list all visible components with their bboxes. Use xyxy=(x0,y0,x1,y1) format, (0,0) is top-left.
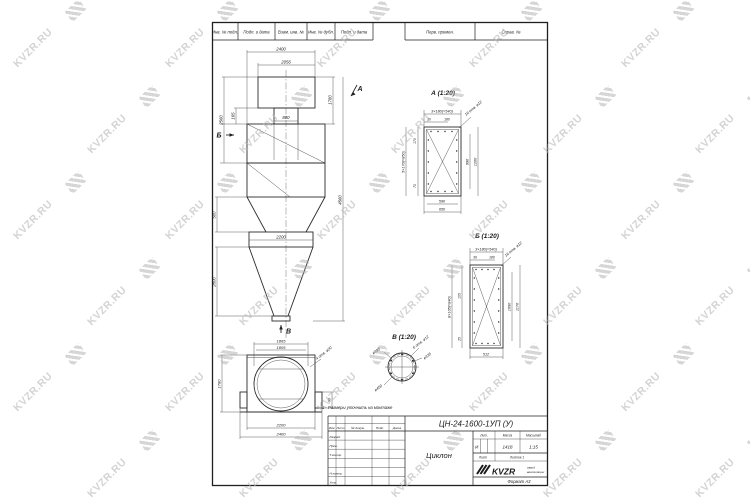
logo-subtext-1: завод xyxy=(526,466,535,470)
dim-label: 180 xyxy=(489,256,495,260)
row-label: Т.контр. xyxy=(330,453,343,457)
dim-label: 2200 xyxy=(276,423,287,428)
section-arrow-label-a: А xyxy=(356,86,362,93)
sheet-label: Лист xyxy=(478,456,488,460)
main-view-labels: 2400 2056 165 1780 800 2560 500 2800 220… xyxy=(212,47,363,336)
row-label: Разраб. xyxy=(330,435,341,439)
holes-note: 16 отв. ø12 xyxy=(504,241,523,258)
row-label: Н.контр. xyxy=(330,472,343,476)
dim-label: 180 xyxy=(444,118,450,122)
main-view-geometry xyxy=(247,70,325,338)
kvzr-logo-icon xyxy=(477,465,490,474)
holes-note: 4 отв. ø20 xyxy=(315,345,333,360)
sheets-label: Листов 1 xyxy=(509,456,524,460)
lit-label: Лит. xyxy=(479,434,488,438)
view-b-title: Б (1:20) xyxy=(475,233,499,240)
dim-label: ø450 xyxy=(374,383,384,392)
mass-value: 1418 xyxy=(502,445,513,450)
dim-label: 1200 xyxy=(474,157,478,166)
strip-cell-label: Инв. № подл. xyxy=(212,30,238,35)
dim-label: 1805 xyxy=(277,345,287,350)
col-label: Лист xyxy=(336,426,345,430)
lit-value: И xyxy=(475,445,479,450)
dim-label: 2200 xyxy=(275,235,286,240)
strip-cell-label: Инв. № дубл. xyxy=(308,30,334,35)
view-v-geometry xyxy=(384,348,422,385)
dim-label: 3×180(=540) xyxy=(431,110,453,114)
view-a-title: А (1:20) xyxy=(430,90,455,97)
dim-label: 25 xyxy=(458,337,462,342)
dim-label: 2400 xyxy=(275,47,286,52)
kvzr-logo: KVZR завод вентиляции xyxy=(477,465,545,477)
strip-cell-label: Подп. и дата xyxy=(341,30,368,35)
col-label: Подп. xyxy=(376,426,384,430)
dim-label: 512 xyxy=(483,353,490,357)
view-v-labels: В (1:20) 6 отв. ø12 ø395 ø335 ø450 xyxy=(372,334,433,392)
col-label: Изм. xyxy=(329,426,336,430)
dim-label: 500 xyxy=(212,211,217,219)
dim-label: 1170 xyxy=(516,302,520,311)
section-arrow-label-v: В xyxy=(286,329,291,336)
dim-label: 590 xyxy=(439,200,446,204)
drawing-sheet-svg: Инв. № подл. Подп. и дата Взам. инв. № И… xyxy=(0,0,750,500)
dim-label: 165 xyxy=(231,112,236,120)
scale-value: 1:15 xyxy=(529,445,538,450)
top-strip-labels: Инв. № подл. Подп. и дата Взам. инв. № И… xyxy=(212,30,521,35)
part-name: Циклон xyxy=(426,451,452,460)
drawing-designation: ЦН-24-1600-1УП (У) xyxy=(439,420,514,429)
dim-label: 170 xyxy=(413,138,417,144)
dim-label: 1780 xyxy=(328,95,333,105)
row-label: Утв. xyxy=(330,481,337,485)
dim-label: 2056 xyxy=(280,60,291,65)
format-label: Формат А3 xyxy=(508,479,532,484)
dim-label: 8×105(=840) xyxy=(448,295,452,317)
dim-label: 4560 xyxy=(338,195,343,205)
dim-label: 2560 xyxy=(219,115,224,126)
dim-label: 30 xyxy=(427,118,431,122)
dim-label: 105 xyxy=(458,293,462,299)
dim-label: 650 xyxy=(439,208,446,212)
dim-label: 2800 xyxy=(212,277,217,288)
dim-label: 3×180(=540) xyxy=(475,248,497,252)
dim-label: ø395 xyxy=(372,346,382,355)
sprav-label: Справ. № xyxy=(501,30,520,35)
holes-note: 16 отв. ø12 xyxy=(464,100,483,117)
screenshot-stage: Инв. № подл. Подп. и дата Взам. инв. № И… xyxy=(0,0,750,500)
col-label: № докум. xyxy=(351,426,365,430)
section-arrow-label-b: Б xyxy=(217,133,222,140)
dim-label: 1090 xyxy=(508,302,512,311)
dim-label: 5×170(=850) xyxy=(402,150,406,172)
dim-label: 1865 xyxy=(277,339,287,344)
dim-label: 70 xyxy=(413,184,417,188)
dim-label: 36 xyxy=(473,256,477,260)
drawing-note: 1 - Размеры уточнить на монтаже xyxy=(322,405,393,410)
col-label: Дата xyxy=(392,426,401,430)
scale-label: Масштаб xyxy=(526,434,541,438)
dim-label: 90 xyxy=(328,397,332,402)
row-label: Пров. xyxy=(330,444,338,448)
dim-label: 1780 xyxy=(217,379,222,389)
dim-label: 990 xyxy=(466,158,470,165)
perv-primen-label: Перв. примен. xyxy=(426,30,454,35)
logo-subtext-2: вентиляции xyxy=(527,470,545,474)
mass-label: Масса xyxy=(503,434,513,438)
title-block-text: ЦН-24-1600-1УП (У) Изм. Лист № докум. По… xyxy=(329,420,545,485)
logo-text: KVZR xyxy=(492,467,516,477)
dim-label: 800 xyxy=(282,115,290,120)
strip-cell-label: Взам. инв. № xyxy=(278,30,304,35)
dim-label: ø335 xyxy=(423,351,433,360)
bottom-view-labels: 1865 1805 1780 4 отв. ø20 90 2200 2400 xyxy=(217,339,334,437)
strip-cell-label: Подп. и дата xyxy=(243,30,270,35)
dim-label: 2400 xyxy=(276,432,287,437)
view-v-title: В (1:20) xyxy=(392,334,416,341)
